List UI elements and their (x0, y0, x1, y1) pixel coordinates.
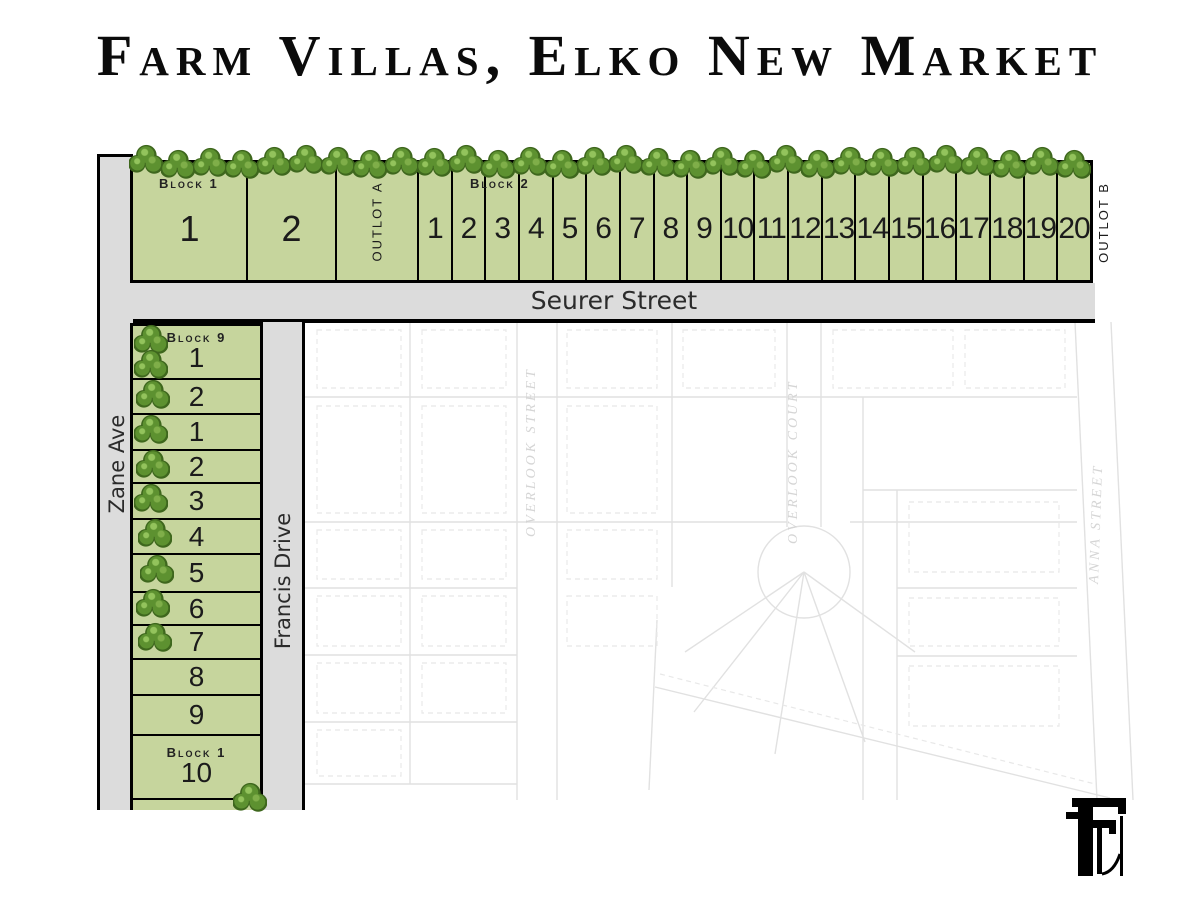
lot-number: 10 (720, 163, 754, 280)
lot-row: 4 (133, 518, 260, 553)
lot-number: 5 (189, 557, 205, 589)
lot-number: 12 (787, 163, 821, 280)
page-title: Farm Villas, Elko New Market (0, 22, 1200, 89)
tree-icon (289, 144, 323, 176)
tree-icon (481, 149, 515, 181)
lot-number: 7 (619, 163, 653, 280)
background-survey-plat: Overlook Street Overlook Court Anna Stre… (305, 322, 1160, 800)
lot-number: 17 (955, 163, 989, 280)
tree-icon (545, 149, 579, 181)
lot-number: 1 (189, 342, 205, 374)
lot-number: 15 (888, 163, 922, 280)
tree-icon (129, 144, 163, 176)
lot-number: 11 (753, 163, 787, 280)
farm-villas-logo (1066, 796, 1132, 878)
tree-icon (641, 147, 675, 179)
tree-icon (417, 147, 451, 179)
lot-row-partial (133, 798, 260, 810)
seurer-street-label: Seurer Street (133, 283, 1095, 319)
plat-culdesac (685, 526, 915, 754)
zane-ave-label: Zane Ave (105, 415, 129, 514)
lot-number: 9 (189, 699, 205, 731)
lot-number: 10 (181, 757, 212, 789)
lot-row: 7 (133, 624, 260, 658)
tree-icon (1025, 146, 1059, 178)
lot-number: 3 (189, 485, 205, 517)
tree-icon (193, 147, 227, 179)
lot-number: 13 (821, 163, 855, 280)
tree-icon (257, 146, 291, 178)
block-9-label: Block 9 (167, 330, 227, 345)
bg-street-label-overlook-court: Overlook Court (786, 379, 801, 544)
tree-icon (449, 144, 483, 176)
francis-drive-label: Francis Drive (271, 512, 295, 648)
tree-icon (609, 144, 643, 176)
tree-icon (897, 146, 931, 178)
lot-number: 6 (189, 593, 205, 625)
tree-hedge (131, 146, 1093, 180)
lot-row: Block 1 10 (133, 734, 260, 798)
tree-icon (705, 146, 739, 178)
lot-row: Block 9 1 (133, 326, 260, 378)
road-seurer-street: Seurer Street (133, 283, 1095, 323)
lot-number: 1 (189, 416, 205, 448)
tree-icon (961, 146, 995, 178)
lot-number: 20 (1056, 163, 1090, 280)
lot-row: 3 (133, 482, 260, 518)
tree-icon (769, 144, 803, 176)
lot-number: 5 (552, 163, 586, 280)
tree-icon (513, 146, 547, 178)
lot-number: 2 (189, 381, 205, 413)
tree-icon (353, 149, 387, 181)
lot-number: 7 (189, 626, 205, 658)
plat-map-page: Farm Villas, Elko New Market (0, 0, 1200, 900)
lot-row: 9 (133, 694, 260, 734)
tree-icon (385, 146, 419, 178)
tree-icon (865, 147, 899, 179)
lot-number: 1 (417, 163, 451, 280)
lot-number: 18 (989, 163, 1023, 280)
lot-number: 4 (189, 521, 205, 553)
lot-block1-2: 2 (246, 163, 335, 280)
tree-icon (993, 149, 1027, 181)
logo-monogram (1066, 798, 1126, 876)
outlot-a-label: Outlot A (370, 181, 385, 261)
tree-icon (321, 146, 355, 178)
left-lot-block: Block 9 1 2 1 2 3 4 5 6 7 8 9 Block 1 10 (130, 323, 263, 810)
tree-icon (577, 146, 611, 178)
lot-number: 8 (653, 163, 687, 280)
lot-number: 19 (1023, 163, 1057, 280)
tree-icon (225, 149, 259, 181)
lot-number: 14 (854, 163, 888, 280)
tree-icon (1057, 149, 1091, 181)
lot-row: 2 (133, 378, 260, 413)
outlot-b-label: Outlot B (1096, 182, 1111, 263)
road-zane-ave: Zane Ave (97, 154, 133, 810)
outlot-b: Outlot B (1090, 170, 1117, 275)
lot-row: 1 (133, 413, 260, 449)
lot-number: 8 (189, 661, 205, 693)
plat-grid-lines (305, 322, 1133, 800)
lot-row: 2 (133, 449, 260, 482)
road-francis-drive: Francis Drive (263, 322, 305, 810)
lot-row: 5 (133, 553, 260, 591)
tree-icon (673, 149, 707, 181)
bg-street-label-anna-street: Anna Street (1087, 463, 1106, 585)
outlot-a: Outlot A (335, 163, 417, 280)
lot-row: 6 (133, 591, 260, 624)
lot-number: 16 (922, 163, 956, 280)
lot-number: 2 (189, 451, 205, 483)
tree-icon (737, 149, 771, 181)
block-1-label-left: Block 1 (167, 745, 227, 760)
tree-icon (929, 144, 963, 176)
bg-street-label-overlook-street: Overlook Street (524, 367, 539, 537)
tree-icon (801, 149, 835, 181)
plat-setback-dashes (317, 330, 1095, 784)
tree-icon (833, 146, 867, 178)
lot-row: 8 (133, 658, 260, 694)
tree-icon (161, 149, 195, 181)
lot-number: 9 (686, 163, 720, 280)
lot-number: 6 (585, 163, 619, 280)
